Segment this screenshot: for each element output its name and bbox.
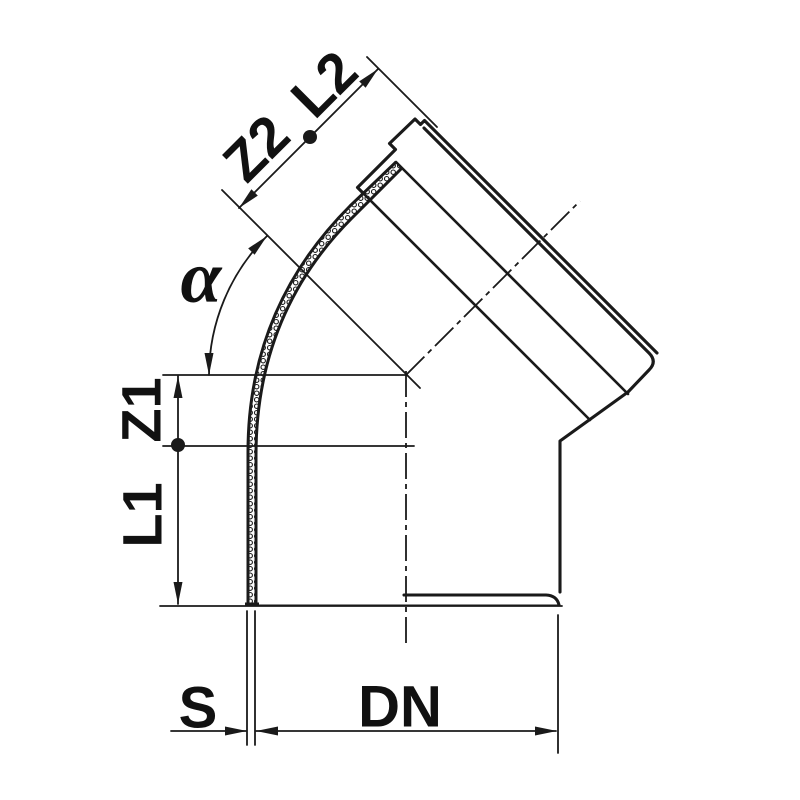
arrow-dn-left bbox=[256, 727, 278, 736]
dimension-dot-left bbox=[171, 438, 185, 452]
label-l2: L2 bbox=[279, 39, 370, 130]
sectioned-wall-hatch bbox=[245, 162, 402, 604]
extension-line-socket-mouth bbox=[367, 57, 437, 127]
dimension-dot-incline bbox=[303, 130, 317, 144]
technical-drawing-pipe-bend: Z2 L2 α Z1 L1 S DN bbox=[0, 0, 800, 800]
arrow-l1-down bbox=[174, 582, 183, 604]
socket-seat-line bbox=[396, 162, 628, 394]
wall-outer-edge bbox=[248, 162, 396, 604]
arrow-dn-right bbox=[535, 727, 557, 736]
arrow-z1-up bbox=[174, 376, 183, 398]
label-l1: L1 bbox=[111, 482, 174, 547]
dimension-lines bbox=[160, 57, 562, 753]
socket-lower-outline bbox=[424, 128, 653, 592]
fitting-outline bbox=[358, 119, 658, 605]
pipe-bend-diagram: Z2 L2 α Z1 L1 S DN bbox=[0, 0, 800, 800]
arrow-alpha-top bbox=[248, 236, 267, 255]
label-z2: Z2 bbox=[211, 103, 302, 194]
centerline-inclined bbox=[406, 201, 580, 375]
centerlines bbox=[406, 201, 580, 648]
arrow-alpha-bottom bbox=[205, 353, 214, 375]
arrowheads bbox=[171, 69, 557, 736]
label-z1: Z1 bbox=[110, 377, 173, 442]
label-alpha: α bbox=[181, 237, 223, 319]
spigot-end-edge bbox=[404, 595, 559, 605]
label-dn: DN bbox=[358, 675, 442, 740]
label-s: S bbox=[179, 676, 218, 741]
arrow-s-right bbox=[225, 727, 247, 736]
